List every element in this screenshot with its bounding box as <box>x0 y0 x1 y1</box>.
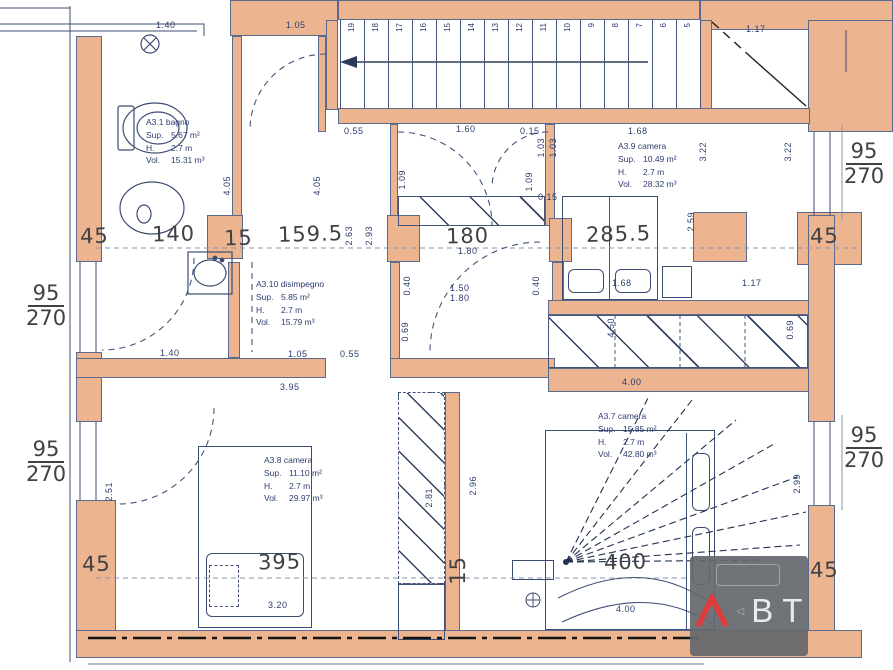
room-label-camera-a3-9: A3.9 cameraSup.10.49 m²H.2.7 mVol.28.32 … <box>618 140 677 190</box>
logo-red-roof-icon <box>694 594 730 628</box>
floor-plan-scan: 1.401.051.170.551.600.151.683.223.224.05… <box>0 0 893 670</box>
room-label-camera-a3-7: A3.7 cameraSup.15.85 m²H.2.7 mVol.42.80 … <box>598 410 657 460</box>
logo-cab-outline <box>716 564 780 586</box>
room-label-camera-a3-8: A3.8 cameraSup.11.10 m²H.2.7 mVol.29.97 … <box>264 454 323 504</box>
abt-logo: ◁ B T <box>690 556 808 656</box>
logo-letter-t: T <box>782 592 804 630</box>
logo-arrow-glyph: ◁ <box>737 606 745 617</box>
room-label-disimpegno: A3.10 disimpegnoSup.5.85 m²H.2.7 mVol.15… <box>256 278 324 328</box>
logo-letter-b: B <box>751 592 775 630</box>
room-label-bagno: A3.1 bagnoSup.5.67 m²H.2.7 mVol.15.31 m³ <box>146 116 205 166</box>
